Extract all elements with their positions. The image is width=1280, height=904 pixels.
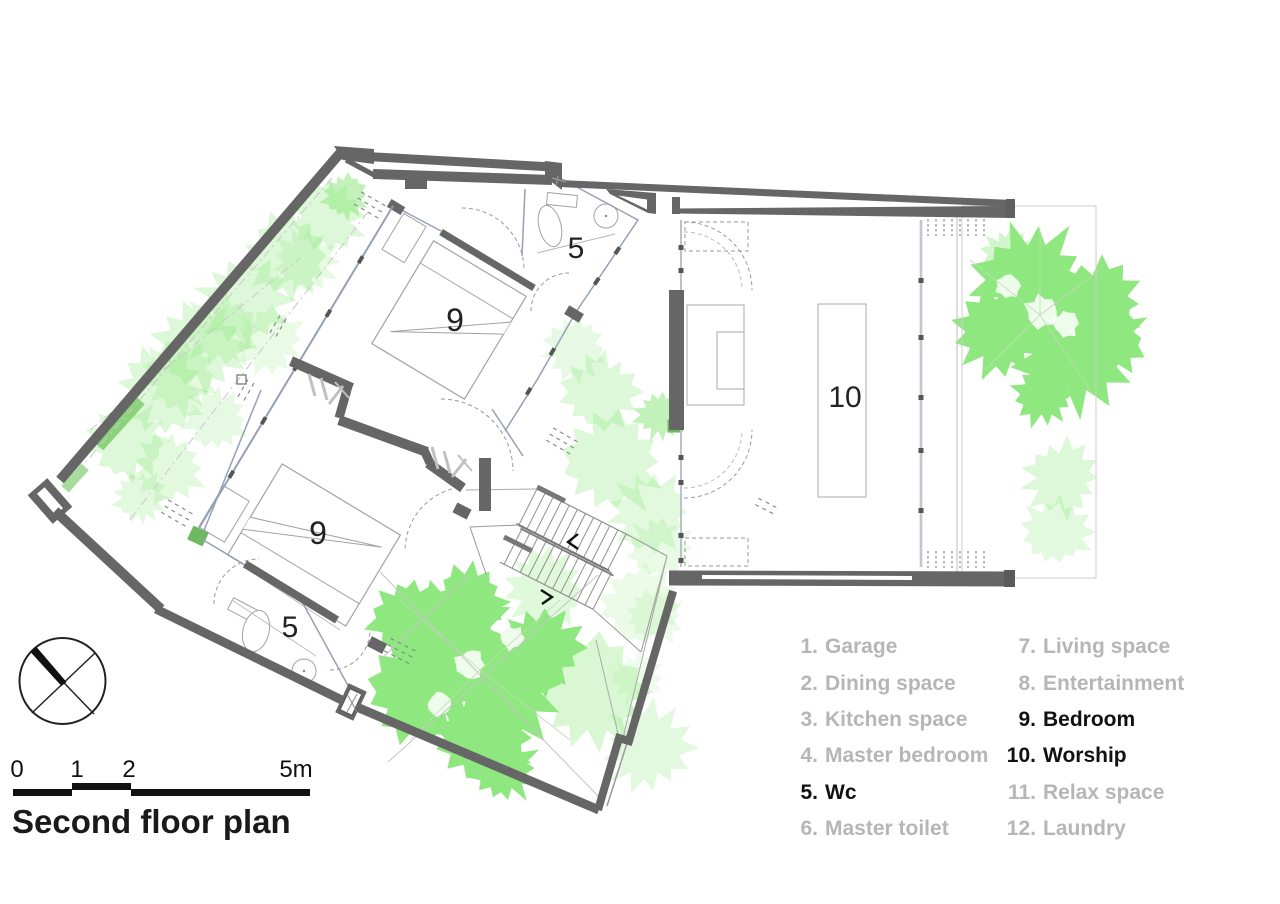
svg-text:2: 2 [122,756,135,783]
svg-text:9: 9 [309,515,327,551]
svg-text:Garage: Garage [825,635,897,658]
svg-text:Bedroom: Bedroom [1043,708,1135,731]
svg-text:Worship: Worship [1043,744,1127,767]
svg-text:10: 10 [828,381,861,414]
svg-text:Entertainment: Entertainment [1043,672,1184,695]
svg-text:Relax space: Relax space [1043,781,1164,804]
svg-text:Master toilet: Master toilet [825,817,949,840]
svg-text:5.: 5. [800,781,818,804]
svg-text:10.: 10. [1007,744,1036,767]
svg-text:1.: 1. [800,635,818,658]
svg-text:1: 1 [70,756,83,783]
svg-text:5: 5 [282,611,299,644]
svg-text:0: 0 [10,756,23,783]
svg-text:7.: 7. [1018,635,1036,658]
svg-text:5: 5 [568,232,585,265]
svg-text:Living space: Living space [1043,635,1170,658]
svg-text:2.: 2. [800,672,818,695]
svg-text:Kitchen space: Kitchen space [825,708,967,731]
svg-text:4.: 4. [800,744,818,767]
svg-text:Wc: Wc [825,781,857,804]
svg-text:Master bedroom: Master bedroom [825,744,988,767]
svg-text:3.: 3. [800,708,818,731]
svg-text:Dining space: Dining space [825,672,956,695]
svg-text:Laundry: Laundry [1043,817,1126,840]
svg-text:Second floor plan: Second floor plan [12,803,291,840]
svg-text:9: 9 [446,302,464,338]
svg-text:6.: 6. [800,817,818,840]
svg-text:11.: 11. [1008,781,1036,804]
svg-text:12.: 12. [1007,817,1036,840]
svg-text:5m: 5m [279,756,312,783]
svg-text:9.: 9. [1018,708,1036,731]
svg-text:8.: 8. [1018,672,1036,695]
